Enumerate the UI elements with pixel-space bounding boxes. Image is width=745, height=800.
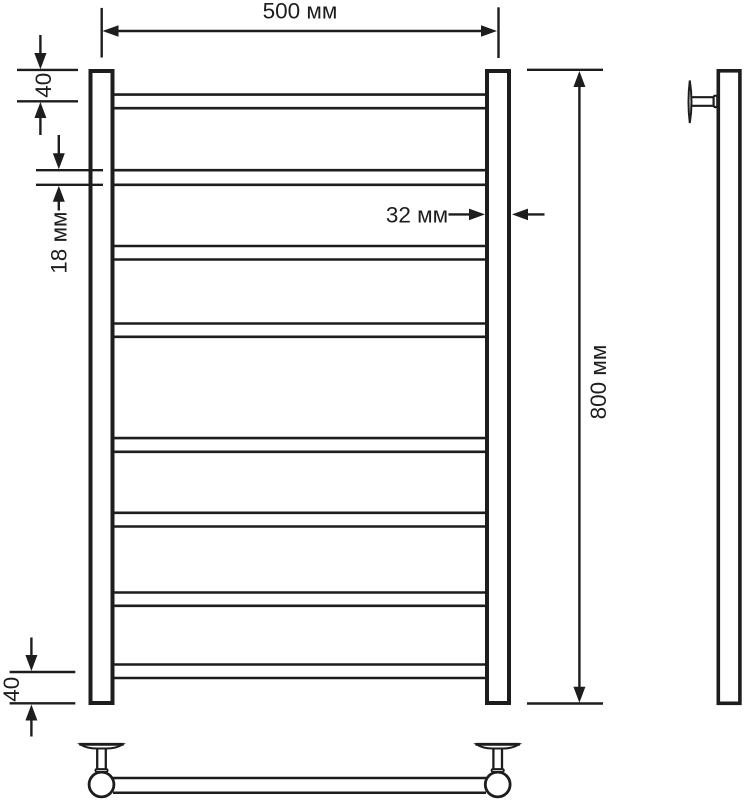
svg-text:40: 40 (0, 677, 24, 702)
svg-text:500 мм: 500 мм (263, 0, 338, 24)
svg-text:40: 40 (31, 73, 56, 98)
svg-text:32 мм: 32 мм (386, 203, 448, 228)
svg-text:18 мм: 18 мм (46, 211, 71, 273)
svg-text:800 мм: 800 мм (586, 345, 611, 420)
